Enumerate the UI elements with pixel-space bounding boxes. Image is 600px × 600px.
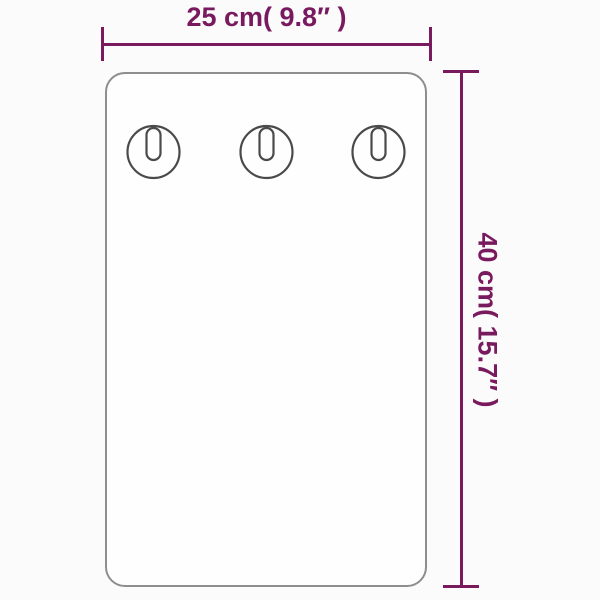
width-dimension-line xyxy=(102,43,431,46)
height-dimension-top-tick xyxy=(443,70,479,73)
width-dimension-label: 25 cm( 9.8″ ) xyxy=(102,2,431,33)
panel-outline xyxy=(105,72,427,587)
product-dimension-diagram: 25 cm( 9.8″ ) 40 cm( 15.7″ ) xyxy=(0,0,600,600)
width-dimension-right-tick xyxy=(429,27,432,61)
height-dimension-line xyxy=(460,71,463,588)
height-dimension-label: 40 cm( 15.7″ ) xyxy=(472,232,503,407)
height-dimension-bottom-tick xyxy=(443,585,479,588)
width-dimension-left-tick xyxy=(101,27,104,61)
